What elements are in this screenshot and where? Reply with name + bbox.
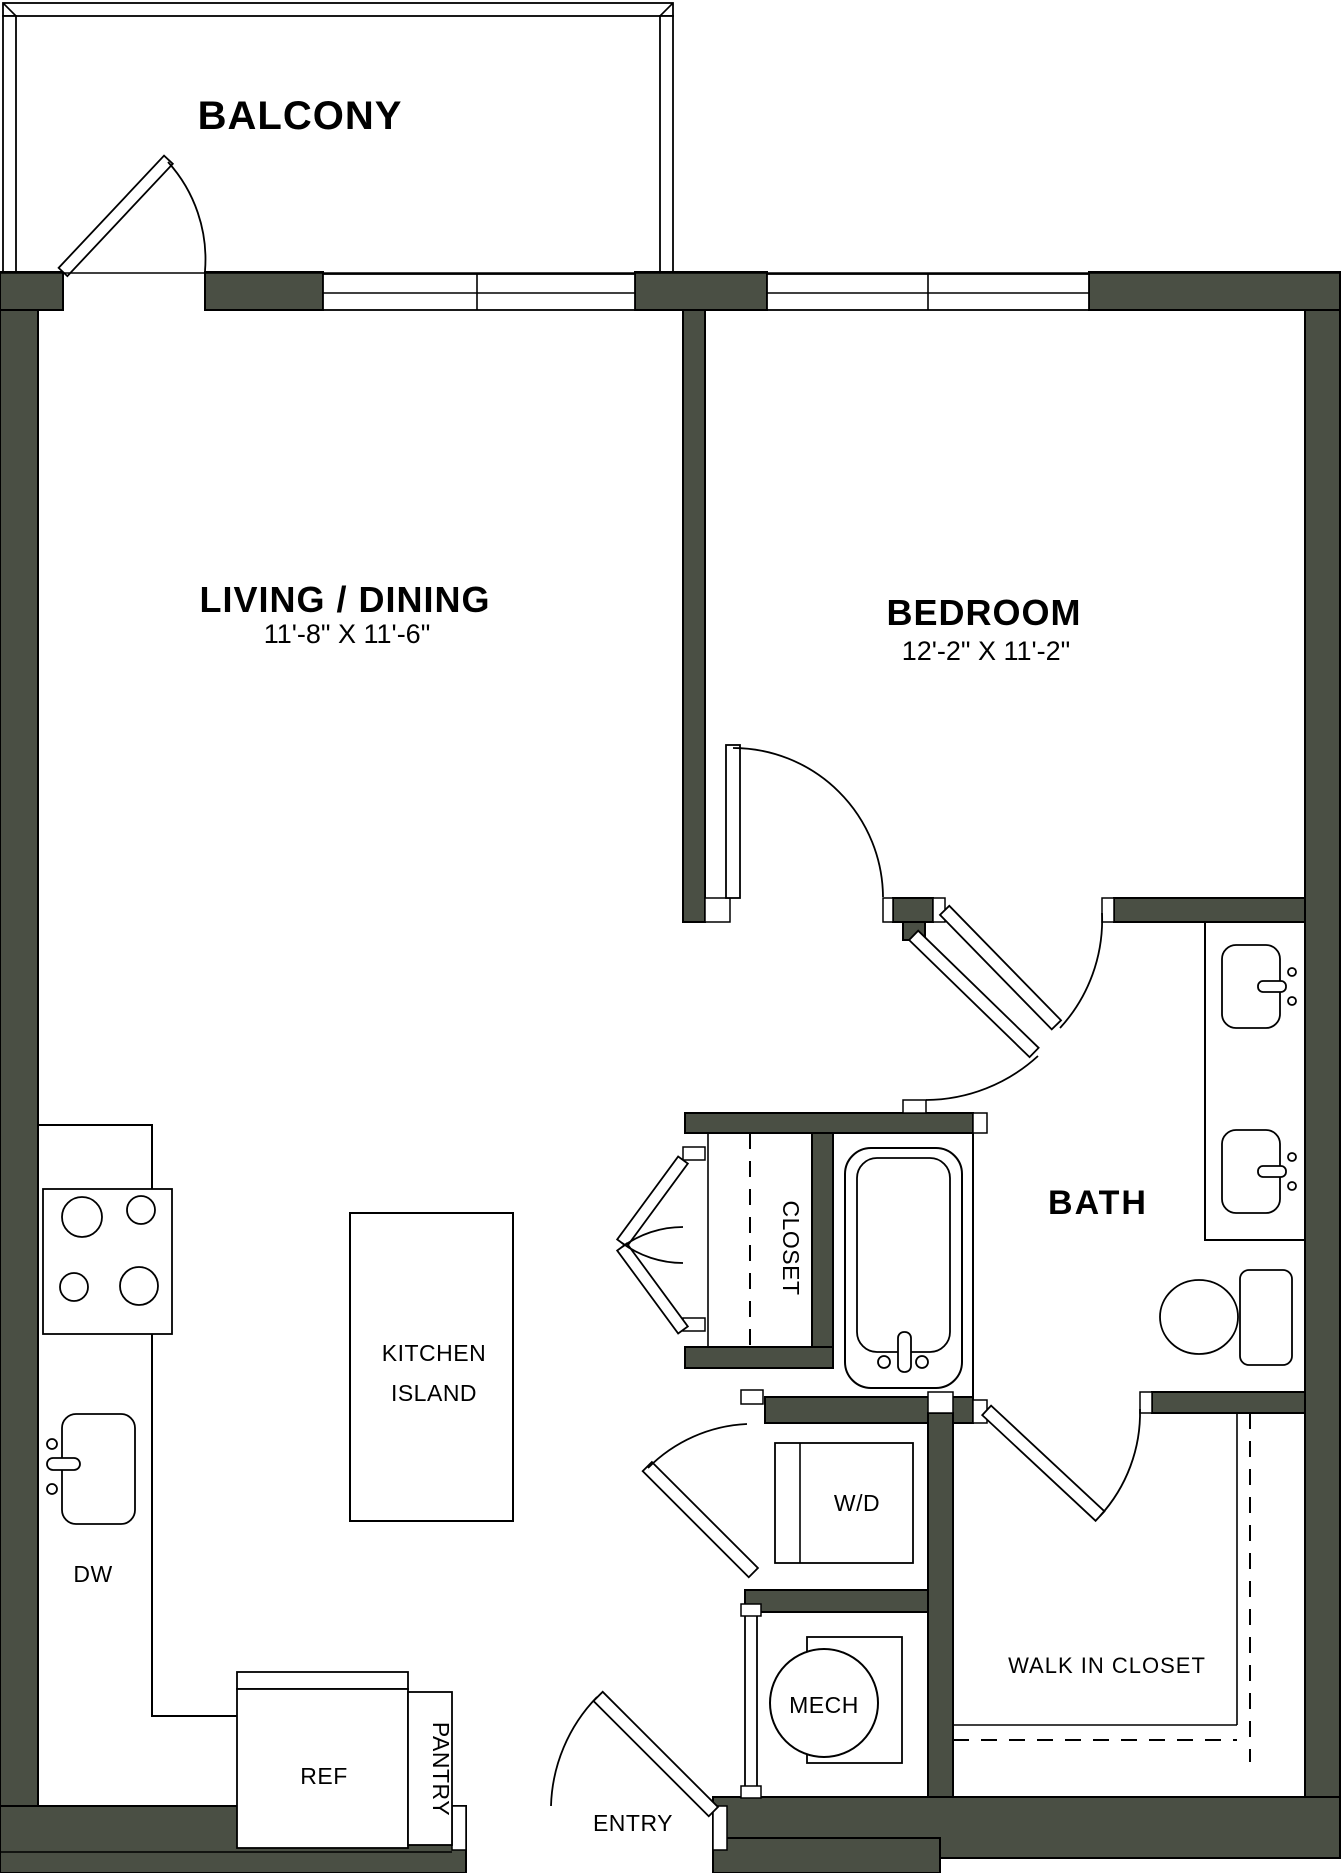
stove-burner-3: [60, 1273, 88, 1301]
labels: BALCONY LIVING / DINING 11'-8" X 11'-6" …: [73, 94, 1206, 1836]
walk-in-door-swing-arc: [1100, 1409, 1140, 1516]
laundry-door-strike-jamb: [741, 1390, 763, 1404]
balcony-railing-left: [3, 16, 16, 272]
vestibule-pier: [893, 898, 933, 922]
bedroom-dimensions: 12'-2" X 11'-2": [902, 636, 1071, 666]
bath-door-swing-arc: [1060, 913, 1102, 1028]
bedroom-label: BEDROOM: [887, 592, 1082, 633]
entry-door-swing-arc: [551, 1697, 597, 1806]
tub-faucet: [898, 1332, 911, 1372]
closet-bottom-wall: [685, 1347, 833, 1368]
top-wall-right-segment: [1089, 272, 1340, 310]
balcony-door: [59, 156, 206, 276]
refrigerator-label: REF: [300, 1763, 348, 1789]
bottom-wall-entry-block: [713, 1838, 940, 1873]
bedroom-door: [726, 745, 883, 898]
tub-handle-left: [878, 1356, 890, 1368]
kitchen-island: [350, 1213, 513, 1521]
tub-wall-end-cap: [973, 1113, 987, 1133]
bedroom-door-swing-arc: [733, 748, 883, 897]
bedroom-door-jamb-right: [883, 898, 893, 922]
pocket-partition: [741, 1604, 761, 1798]
entry-door-leaf: [593, 1692, 717, 1816]
mech-label: MECH: [789, 1692, 859, 1718]
balcony-label: BALCONY: [198, 94, 403, 138]
closet-door-leaf-top: [617, 1156, 688, 1246]
bath-door: [940, 906, 1102, 1030]
vestibule-door-swing-arc: [926, 1056, 1038, 1100]
floor-plan: BALCONY LIVING / DINING 11'-8" X 11'-6" …: [0, 0, 1344, 1873]
stove-burner-1: [62, 1197, 102, 1237]
tub-inner: [857, 1158, 950, 1352]
pocket-partition-panel: [745, 1613, 757, 1788]
walk-in-closet-west-wall: [928, 1413, 953, 1797]
balcony-railing-top: [3, 3, 673, 16]
laundry-door-swing-arc: [648, 1424, 747, 1468]
living-bedroom-divider-wall: [683, 310, 705, 922]
closet-door-leaf-bottom: [617, 1243, 688, 1333]
walk-in-door-leaf: [982, 1406, 1104, 1521]
kitchen-faucet: [47, 1458, 80, 1470]
top-wall-segment: [205, 272, 323, 310]
balcony-door-leaf: [59, 156, 173, 276]
walk-in-door-strike-jamb: [1140, 1392, 1152, 1413]
living-dining-dimensions: 11'-8" X 11'-6": [264, 619, 431, 649]
vanity-handle-1b: [1288, 997, 1296, 1005]
top-wall-center-pier: [635, 272, 767, 310]
washer-dryer-label: W/D: [834, 1490, 880, 1516]
dishwasher-label: DW: [73, 1561, 112, 1587]
refrigerator-counter-lip: [237, 1672, 408, 1689]
mech-north-wall: [745, 1590, 928, 1612]
walk-in-closet-wall-cap: [928, 1392, 953, 1413]
hall-closet: [617, 1133, 750, 1347]
bath-vanity: [1205, 922, 1305, 1240]
pocket-partition-cap-top: [741, 1604, 761, 1616]
top-wall-left-pier: [0, 272, 63, 310]
toilet: [1160, 1270, 1292, 1365]
kitchen-island-label-line2: ISLAND: [391, 1380, 477, 1406]
closet-tub-divider-wall: [812, 1133, 833, 1368]
walk-in-closet-top-wall: [1152, 1392, 1305, 1413]
pantry-label: PANTRY: [428, 1722, 454, 1816]
closet-label: CLOSET: [778, 1200, 804, 1295]
bathtub: [845, 1133, 973, 1397]
bedroom-bath-wall: [1114, 898, 1305, 922]
left-wall: [0, 310, 38, 1806]
kitchen-island-label-line1: KITCHEN: [382, 1340, 486, 1366]
walk-in-closet: [953, 1406, 1250, 1762]
stove-burner-4: [120, 1267, 158, 1305]
vanity-faucet-1: [1258, 981, 1286, 992]
balcony-door-swing-arc: [168, 162, 205, 271]
entry-label: ENTRY: [593, 1810, 673, 1836]
kitchen-faucet-handle-bottom: [47, 1484, 57, 1494]
vestibule-door-strike-jamb: [903, 1100, 926, 1113]
vanity-handle-2a: [1288, 1153, 1296, 1161]
toilet-bowl: [1160, 1280, 1238, 1354]
stove-burner-2: [127, 1196, 155, 1224]
tub-handle-right: [916, 1356, 928, 1368]
vanity-handle-1a: [1288, 968, 1296, 976]
kitchen-faucet-handle-top: [47, 1439, 57, 1449]
living-dining-label: LIVING / DINING: [199, 579, 490, 620]
exterior-walls: [0, 272, 1340, 1873]
bedroom-door-leaf: [726, 745, 740, 898]
vestibule-door: [909, 931, 1039, 1100]
closet-jamb-top: [683, 1147, 705, 1160]
entry-door-jamb-right: [713, 1806, 727, 1850]
vanity-faucet-2: [1258, 1166, 1286, 1177]
living-window: [323, 274, 635, 310]
closet-tub-top-wall: [685, 1113, 973, 1133]
walk-in-closet-label: WALK IN CLOSET: [1008, 1653, 1206, 1678]
toilet-tank: [1240, 1270, 1292, 1365]
pocket-partition-cap-bottom: [741, 1786, 761, 1798]
laundry-door-leaf: [643, 1462, 758, 1577]
bath-label: BATH: [1048, 1184, 1148, 1222]
bath-door-jamb-right: [1102, 898, 1114, 922]
right-wall: [1305, 310, 1340, 1797]
bedroom-door-jamb-left: [705, 898, 730, 922]
balcony-railing-right: [660, 16, 673, 272]
interior-walls: [683, 310, 1305, 1797]
vanity-handle-2b: [1288, 1182, 1296, 1190]
entry-door: [551, 1692, 718, 1816]
